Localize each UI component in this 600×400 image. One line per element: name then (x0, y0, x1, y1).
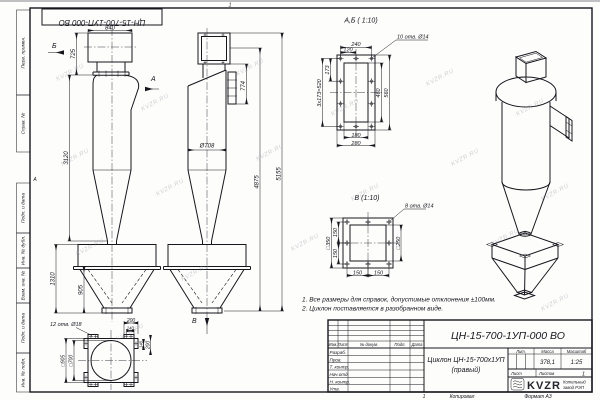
note-line-2: 2. Циклон поставляется в разобранном вид… (301, 305, 443, 313)
margin-label-sprav-no: Справ. № (21, 113, 27, 135)
tb-row-razrab: Разраб. (330, 350, 347, 355)
margin-column: Перв. примен. Справ. № Подп. и дата Инв.… (17, 10, 31, 392)
zone-marker-left: А (32, 177, 37, 183)
margin-label-inv-podl: Инв. № подл. (21, 358, 27, 388)
dim-725: 725 (71, 48, 77, 59)
zone-marker-bottom: 1 (423, 394, 426, 400)
dim-200-right: 200 (146, 341, 152, 351)
dim-sq350: □350 (326, 236, 332, 249)
tb-sheets-label: Листов (538, 371, 555, 376)
tb-logo: KVZR Котельный завод РЭП (511, 379, 586, 393)
note-line-1: 1. Все размеры для справок, допустимые о… (302, 296, 496, 304)
view-arrow-v-label: В (192, 318, 197, 325)
dim-150-left-1: 150 (333, 227, 339, 237)
detail-v-holes-note: 8 отв. Ø14 (405, 204, 434, 210)
dim-d708: Ø708 (199, 144, 215, 150)
margin-label-podp-data-1: Подп. и дата (21, 193, 27, 223)
tb-col-data: Дата (410, 342, 423, 347)
tb-row-tkontr: Т. контр. (330, 365, 350, 370)
tb-sheet-label: Лист (510, 371, 522, 376)
dim-520: 3х173=520 (317, 78, 323, 106)
dim-560: 560 (384, 87, 390, 97)
tb-row-prov: Пров. (330, 357, 342, 362)
footer-kopiroval: Копировал (450, 394, 475, 400)
tb-logo-text: KVZR (527, 380, 561, 392)
view-arrow-b-label: Б (52, 43, 57, 50)
dim-280: 280 (350, 141, 361, 147)
tb-row-nkontr: Н. контр. (330, 379, 351, 384)
detail-ab: А,Б ( 1:10) 240 120 173 3х173=520 (317, 18, 429, 148)
dim-460: 460 (376, 87, 382, 97)
dim-905: 905 (79, 284, 85, 295)
dim-150-left-2: 150 (333, 248, 339, 258)
dim-sq250: □250 (396, 236, 402, 249)
view-front: 840 725 3120 1310 905 Б А (48, 25, 161, 322)
dim-180: 180 (351, 133, 361, 139)
footer-format: Формат А3 (524, 394, 552, 400)
detail-flange-holes-note: 12 отв. Ø18 (50, 322, 83, 328)
dim-sq700: □700 (69, 355, 75, 367)
dim-sq905: □905 (61, 355, 67, 367)
detail-flange: 12 отв. Ø18 200 140 140 200 □905 □700 (50, 318, 152, 390)
zone-marker-top: 1 (229, 3, 232, 9)
dim-140-top: 140 (127, 326, 135, 331)
margin-label-perv-primen: Перв. примен. (21, 37, 27, 69)
margin-label-vzam-inv: Взам. инв. № (21, 271, 27, 301)
dim-774: 774 (241, 80, 247, 91)
top-stamp: ЦН-15-700-1УП-000 ВО (42, 9, 162, 27)
footer: 1 Копировал Формат А3 (423, 394, 552, 400)
dim-173: 173 (325, 64, 331, 74)
tb-logo-sub-1: Котельный (563, 380, 586, 385)
tb-doc-name-1: Циклон ЦН-15-700х1УП (427, 357, 505, 364)
tb-mass-label: Масса (541, 349, 554, 354)
tb-mass-value: 378,1 (540, 360, 555, 366)
tb-sheets-value: 1 (582, 372, 585, 378)
logo-waves-icon (513, 381, 522, 388)
detail-ab-title: А,Б ( 1:10) (343, 18, 377, 25)
detail-ab-holes-note: 10 отв. Ø14 (397, 35, 429, 41)
tb-scale-value: 1:25 (571, 360, 583, 366)
tb-row-utv: Утв. (330, 387, 340, 392)
drawing-canvas: 1 А Перв. примен. Справ. № Подп. и дата … (0, 0, 600, 400)
view-arrow-a-label: А (150, 76, 156, 83)
dim-5155: 5155 (277, 167, 283, 181)
view-side: 774 Ø708 4875 5155 В (164, 28, 285, 334)
tb-doc-name-2: (правый) (452, 366, 481, 374)
tb-scale-label: Масштаб (567, 349, 587, 354)
dim-150-bottom-1: 150 (353, 271, 363, 277)
margin-label-inv-dubl: Инв. № дубл. (21, 236, 27, 266)
dim-120: 120 (343, 48, 353, 54)
tb-col-izm: Изм. (329, 342, 338, 347)
top-stamp-text: ЦН-15-700-1УП-000 ВО (59, 18, 146, 27)
detail-v-title: В (1:10) (355, 195, 380, 202)
title-block: Изм. Лист № докум. Подп. Дата Разраб. Пр… (328, 320, 592, 392)
dim-140-right: 140 (139, 340, 144, 348)
notes: 1. Все размеры для справок, допустимые о… (301, 296, 496, 313)
tb-row-nachotd: Нач.отд. (330, 372, 349, 377)
detail-v: В (1:10) □350 150 150 □250 150 1 (326, 195, 434, 278)
dim-150-bottom-2: 150 (374, 271, 384, 277)
drawing-sheet: KVZR.RU KVZR.RU KVZR.RU KVZR.RU KVZR.RU … (0, 0, 600, 400)
margin-label-podp-data-2: Подп. и дата (21, 313, 27, 343)
iso-view (487, 52, 573, 300)
dim-840: 840 (105, 25, 116, 31)
tb-col-podp: Подп. (394, 342, 405, 347)
tb-designation: ЦН-15-700-1УП-000 ВО (451, 330, 565, 342)
tb-col-doc: № докум. (360, 342, 378, 347)
tb-col-list: Лист (337, 342, 349, 347)
tb-logo-sub-2: завод РЭП (562, 385, 585, 390)
dim-3120: 3120 (64, 151, 70, 165)
dim-4875: 4875 (255, 175, 261, 189)
dim-200-top: 200 (126, 318, 136, 324)
tb-lit-label: Лит. (515, 349, 526, 354)
dim-1310: 1310 (51, 272, 57, 286)
